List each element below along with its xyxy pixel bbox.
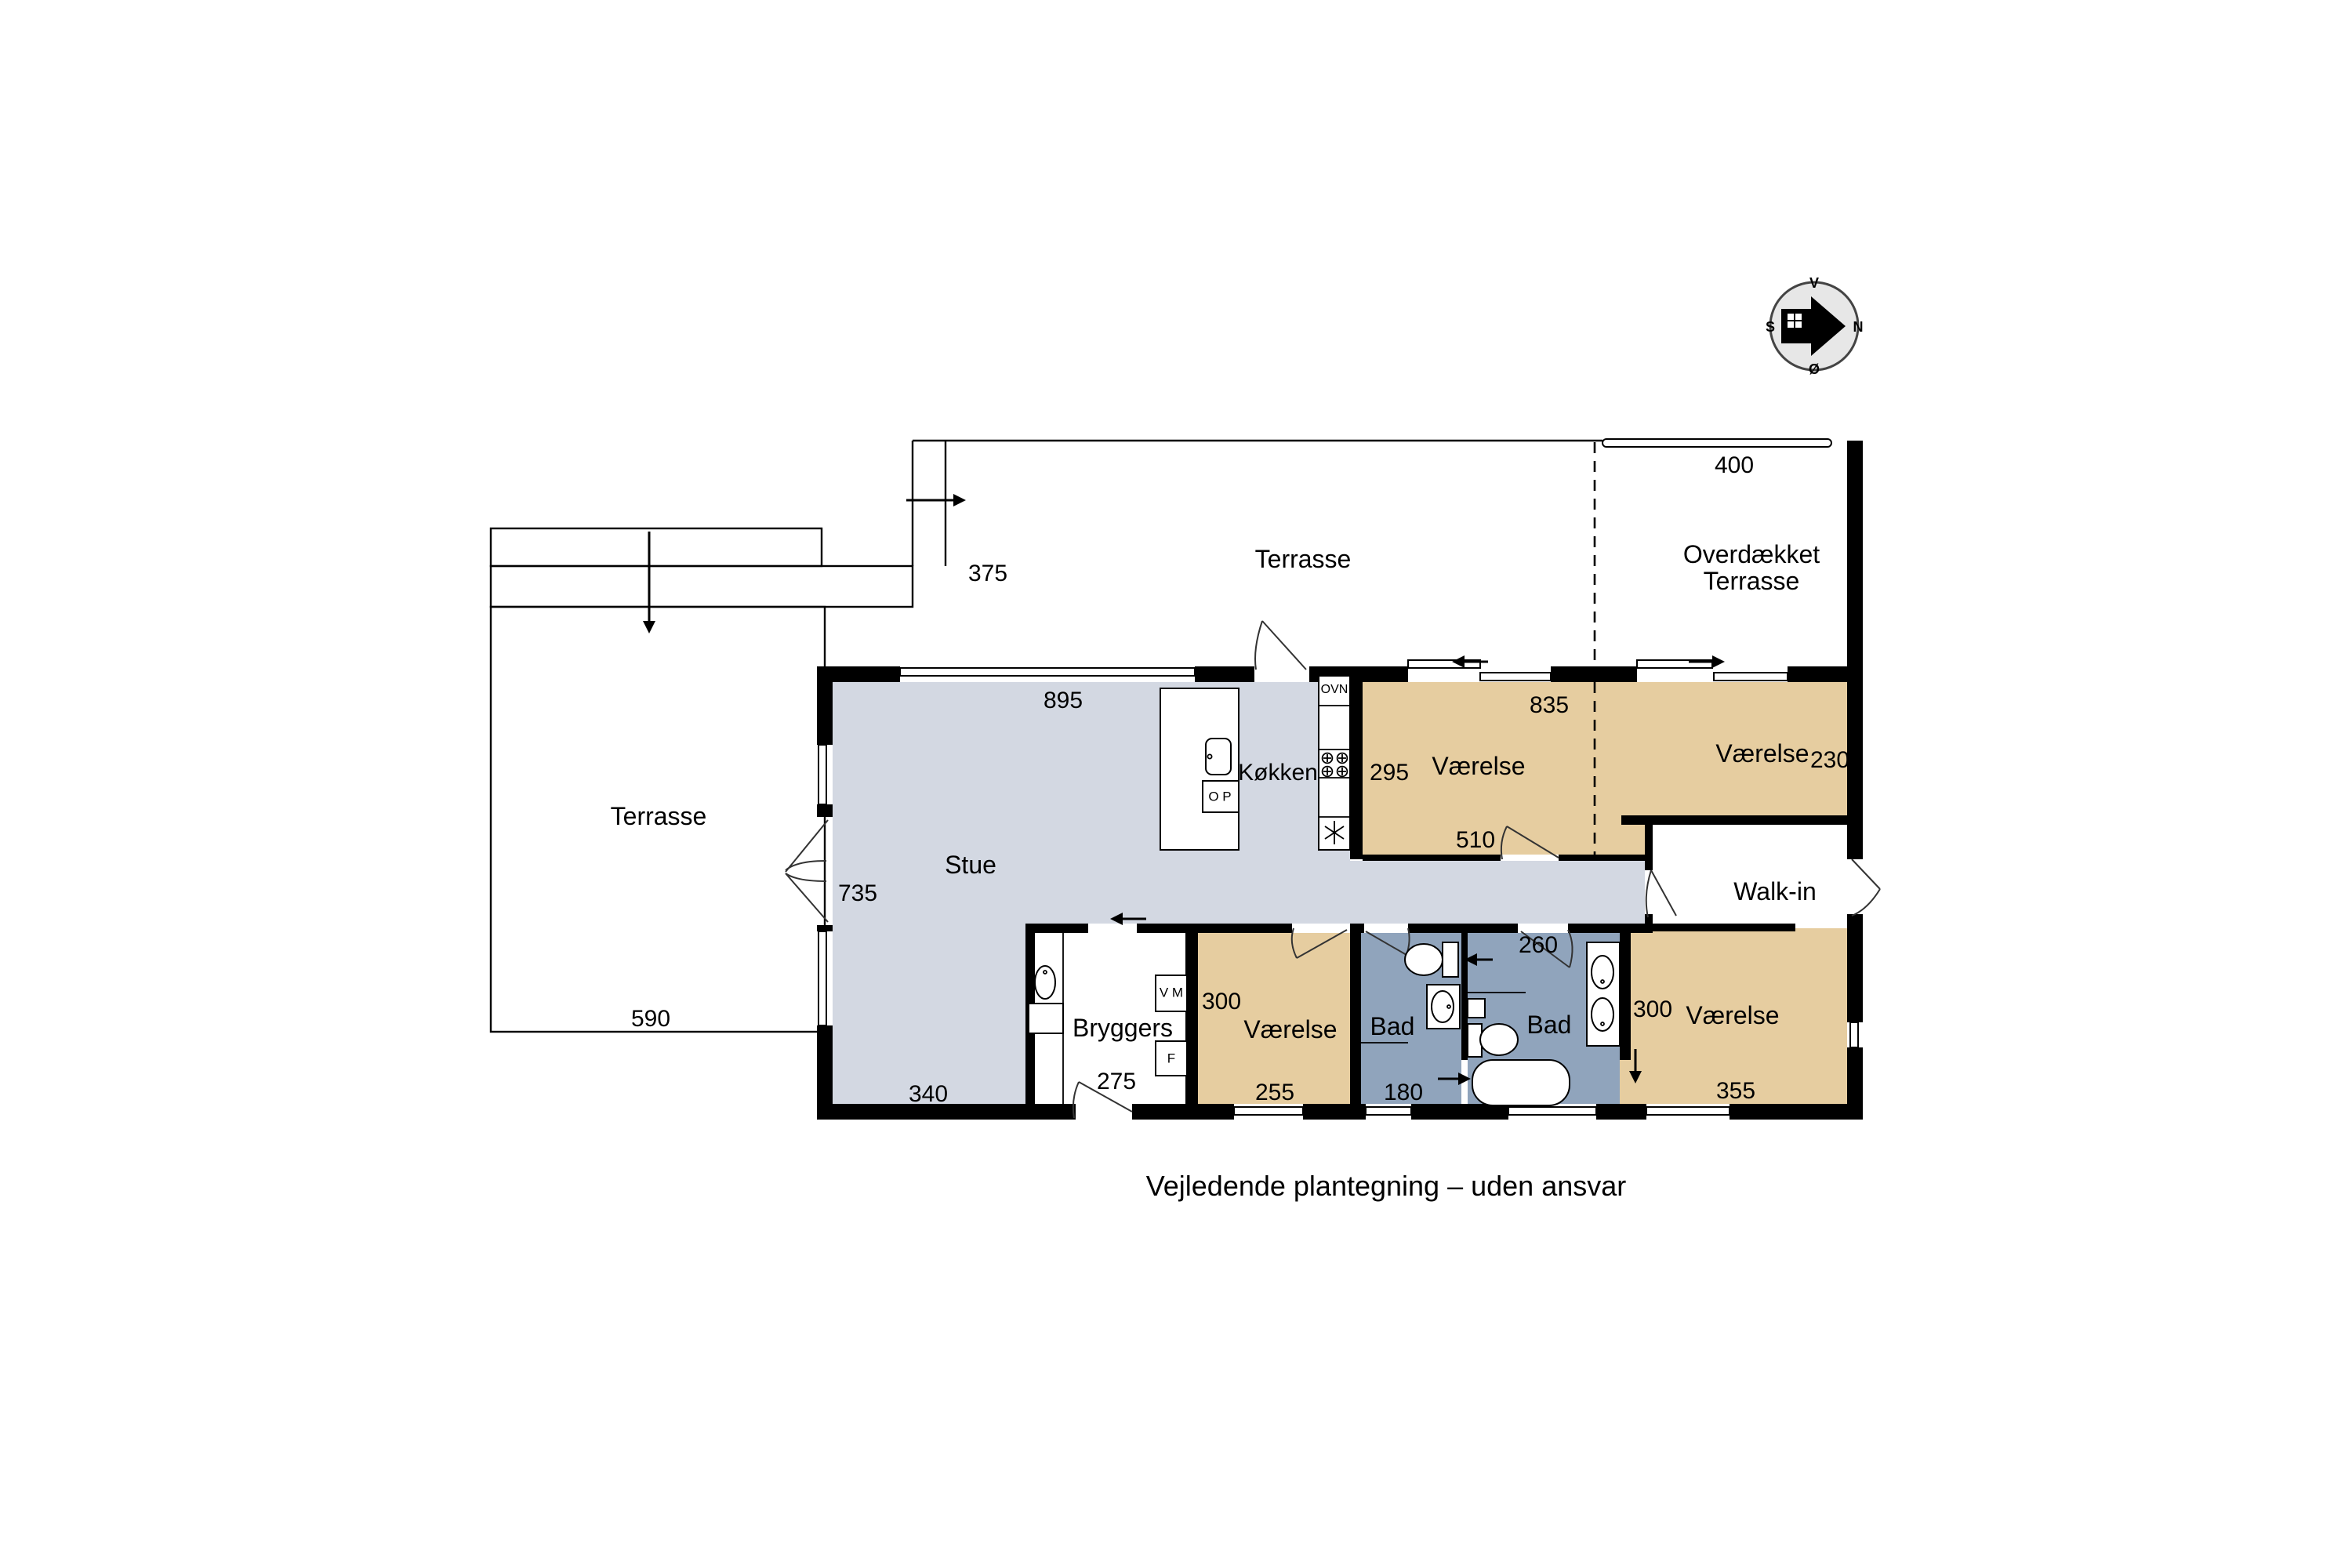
door-french-west [786, 820, 828, 922]
dim-230: 230 [1810, 749, 1849, 772]
dim-835: 835 [1530, 694, 1569, 717]
dim-255: 255 [1255, 1081, 1294, 1105]
terrace-step-upper [491, 528, 822, 566]
appl-f: F [1167, 1052, 1175, 1065]
dim-295: 295 [1370, 761, 1409, 785]
dim-355: 355 [1716, 1080, 1755, 1103]
label-bad-2: Bad [1527, 1014, 1572, 1040]
appl-op: O P [1208, 790, 1231, 804]
compass-letter-right: N [1853, 321, 1864, 335]
window [1366, 1107, 1411, 1115]
plan-graphics [0, 0, 2352, 1568]
label-stue: Stue [945, 855, 996, 880]
label-overdaekket-line1: Overdækket [1683, 544, 1820, 569]
toilet-icon [1480, 1024, 1518, 1055]
bryggers-cabinet [1029, 1004, 1063, 1033]
label-vaerelse-s1: Værelse [1243, 1019, 1337, 1044]
door-walkin-exterior [1852, 859, 1880, 916]
sliding-door-panel [1714, 673, 1788, 681]
window [818, 931, 826, 1025]
label-bryggers: Bryggers [1073, 1018, 1173, 1043]
window [900, 668, 1195, 676]
window [1234, 1107, 1303, 1115]
plan-caption: Vejledende plantegning – uden ansvar [1146, 1171, 1627, 1203]
dim-300-east: 300 [1633, 998, 1672, 1022]
dim-895: 895 [1044, 689, 1083, 713]
toilet-icon [1405, 944, 1443, 975]
bathtub-icon [1472, 1060, 1570, 1105]
label-vaerelse-ne1: Værelse [1432, 756, 1525, 781]
steps-down-arrow [643, 532, 655, 633]
label-koekken: Køkken [1238, 761, 1318, 785]
label-bad-1: Bad [1370, 1016, 1415, 1041]
terrace-entry-arrow [906, 494, 966, 506]
door-walkin-hall [1646, 870, 1676, 917]
terrace-railing [1602, 439, 1831, 447]
compass-icon [1770, 282, 1858, 370]
dim-340: 340 [909, 1083, 948, 1106]
page: Terrasse375400OverdækketTerrasseTerrasse… [0, 0, 2352, 1568]
appl-vm: V M [1160, 986, 1183, 1000]
toilet-cistern-icon [1443, 942, 1458, 977]
dim-375: 375 [968, 562, 1007, 586]
dim-300-west: 300 [1202, 990, 1241, 1014]
compass-letter-top: V [1809, 277, 1819, 291]
window [818, 745, 826, 804]
dim-400: 400 [1715, 454, 1754, 477]
shower-door [1468, 999, 1485, 1018]
window [1850, 1022, 1858, 1047]
appliance-column [1319, 676, 1350, 850]
dim-180: 180 [1384, 1081, 1423, 1105]
appl-ovn: OVN [1321, 684, 1348, 696]
door-kitchen-terrace [1255, 621, 1306, 670]
dim-275: 275 [1097, 1070, 1136, 1094]
window [1646, 1107, 1730, 1115]
label-overdaekket-line2: Terrasse [1704, 571, 1800, 596]
dim-260: 260 [1519, 934, 1558, 957]
label-walkin: Walk-in [1733, 881, 1817, 906]
window [1508, 1107, 1596, 1115]
compass-letter-bottom: Ø [1809, 363, 1820, 377]
floor-plan: Terrasse375400OverdækketTerrasseTerrasse… [0, 0, 2352, 1568]
label-vaerelse-s2: Værelse [1686, 1005, 1779, 1030]
dim-510: 510 [1456, 829, 1495, 852]
sliding-door-panel [1480, 673, 1551, 681]
dim-590: 590 [631, 1007, 670, 1031]
kitchen-island [1160, 688, 1239, 850]
label-terrasse-top: Terrasse [1255, 549, 1352, 574]
island-sink-icon [1206, 739, 1231, 775]
dim-735: 735 [838, 882, 877, 906]
compass-letter-left: S [1766, 321, 1775, 335]
label-vaerelse-ne2: Værelse [1715, 743, 1809, 768]
label-terrasse-west: Terrasse [611, 806, 707, 831]
terrace-step-lower [491, 566, 913, 607]
